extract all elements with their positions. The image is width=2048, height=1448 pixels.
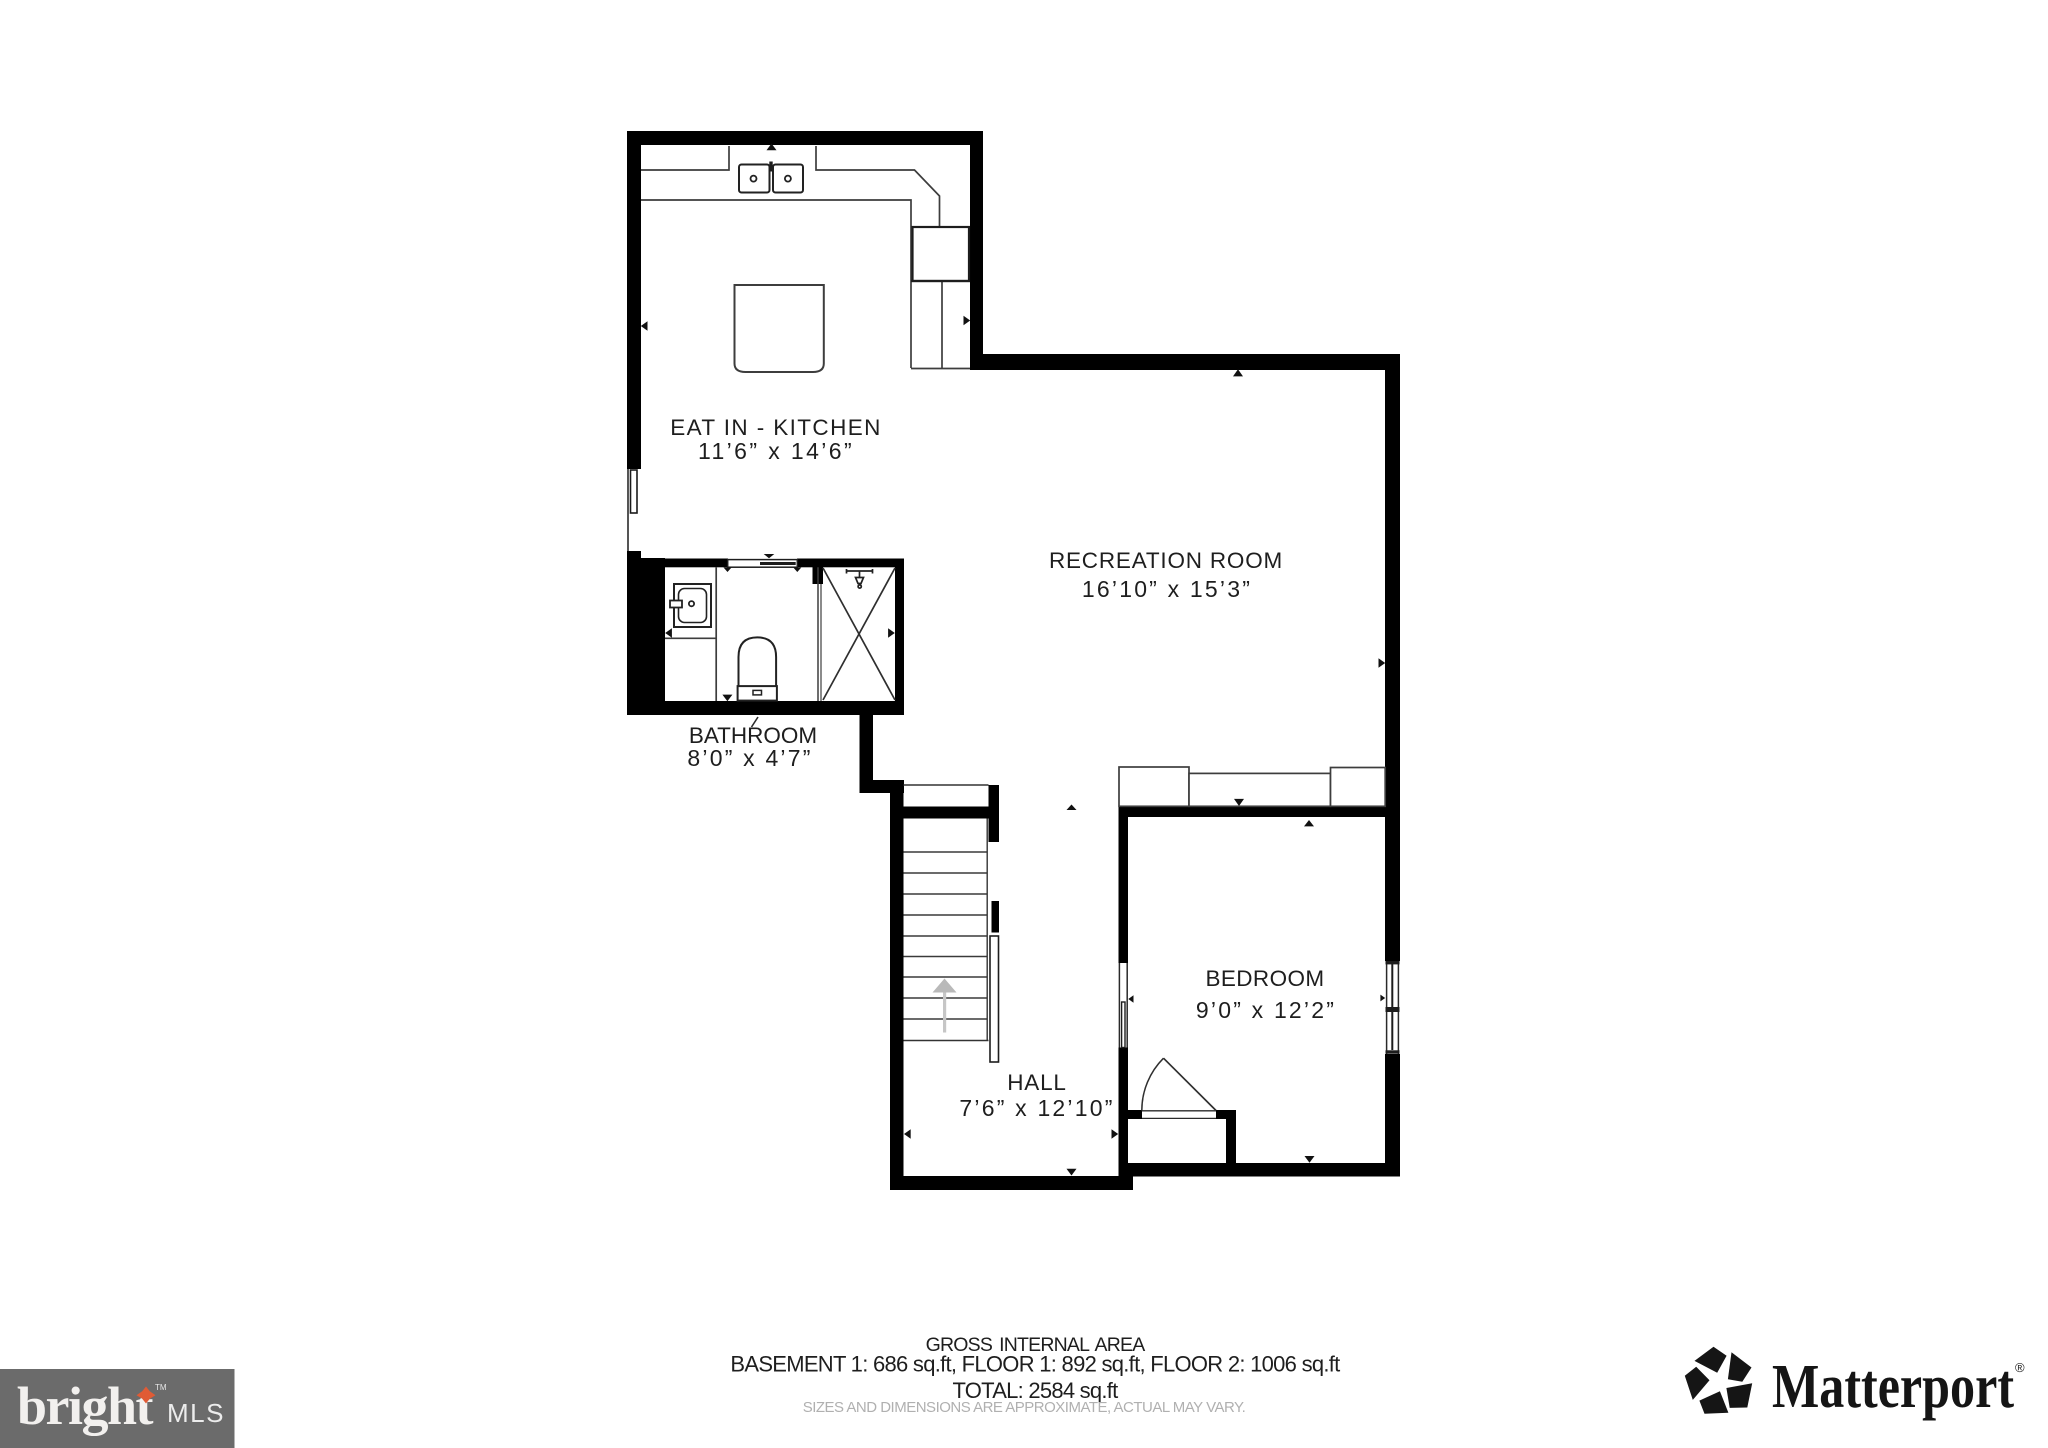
svg-text:9’0” x 12’2”: 9’0” x 12’2”	[1196, 997, 1336, 1023]
svg-text:SIZES AND DIMENSIONS ARE APPRO: SIZES AND DIMENSIONS ARE APPROXIMATE, AC…	[803, 1399, 1246, 1416]
svg-text:BASEMENT 1: 686 sq.ft, FLOOR 1: BASEMENT 1: 686 sq.ft, FLOOR 1: 892 sq.f…	[730, 1352, 1340, 1377]
svg-text:8’0” x 4’7”: 8’0” x 4’7”	[687, 745, 812, 771]
svg-text:MLS: MLS	[167, 1398, 225, 1428]
svg-text:®: ®	[2015, 1360, 2025, 1375]
svg-text:11’6” x 14’6”: 11’6” x 14’6”	[698, 438, 854, 464]
svg-text:Matterport: Matterport	[1772, 1353, 2014, 1421]
svg-text:7’6” x 12’10”: 7’6” x 12’10”	[959, 1095, 1114, 1121]
svg-text:TM: TM	[155, 1383, 167, 1392]
svg-text:BEDROOM: BEDROOM	[1205, 966, 1324, 991]
svg-text:RECREATION ROOM: RECREATION ROOM	[1049, 548, 1283, 573]
svg-text:EAT IN - KITCHEN: EAT IN - KITCHEN	[670, 415, 882, 440]
svg-text:16’10” x 15’3”: 16’10” x 15’3”	[1082, 576, 1252, 602]
svg-text:HALL: HALL	[1007, 1070, 1066, 1095]
svg-text:bright: bright	[17, 1376, 154, 1436]
